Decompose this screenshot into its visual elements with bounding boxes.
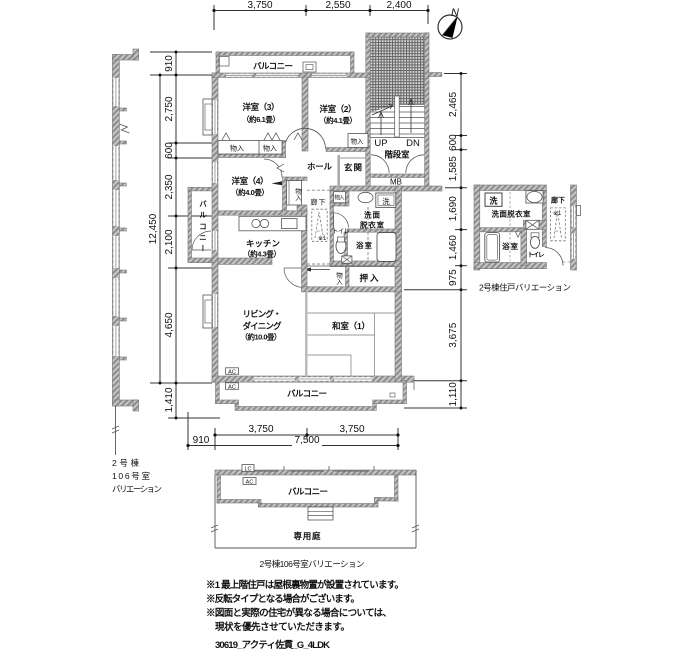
svg-text:910: 910 bbox=[164, 55, 175, 72]
svg-text:UP: UP bbox=[374, 138, 387, 149]
svg-text:物入: 物入 bbox=[230, 144, 244, 153]
svg-text:（約4.3畳）: （約4.3畳） bbox=[243, 249, 281, 259]
svg-text:物入: 物入 bbox=[263, 144, 277, 153]
svg-text:洋室（2）: 洋室（2） bbox=[320, 104, 357, 114]
svg-text:（約4.0畳）: （約4.0畳） bbox=[231, 187, 269, 197]
svg-text:キッチン: キッチン bbox=[246, 239, 280, 249]
svg-text:洗: 洗 bbox=[382, 196, 390, 206]
svg-text:洋室（4）: 洋室（4） bbox=[232, 176, 269, 186]
svg-text:2,400: 2,400 bbox=[386, 0, 411, 11]
svg-text:2,465: 2,465 bbox=[448, 92, 459, 117]
svg-text:3,675: 3,675 bbox=[448, 322, 459, 347]
svg-text:バリエーション: バリエーション bbox=[112, 484, 162, 494]
svg-text:LC: LC bbox=[244, 467, 251, 473]
svg-text:1,690: 1,690 bbox=[448, 196, 459, 221]
svg-text:2,350: 2,350 bbox=[164, 174, 175, 199]
svg-text:物入: 物入 bbox=[351, 137, 365, 146]
svg-text:洋室（3）: 洋室（3） bbox=[243, 102, 280, 112]
svg-text:玄関: 玄関 bbox=[344, 163, 362, 173]
svg-text:洗面: 洗面 bbox=[364, 210, 381, 220]
svg-text:600: 600 bbox=[164, 142, 175, 159]
svg-text:洗: 洗 bbox=[490, 196, 498, 206]
svg-text:（約4.1畳）: （約4.1畳） bbox=[319, 115, 357, 125]
svg-text:1,410: 1,410 bbox=[164, 387, 175, 412]
svg-text:バルコニー: バルコニー bbox=[287, 389, 327, 399]
svg-text:浴室: 浴室 bbox=[502, 241, 519, 251]
svg-text:3,750: 3,750 bbox=[247, 0, 272, 11]
svg-text:（約6.1畳）: （約6.1畳） bbox=[242, 114, 280, 124]
svg-text:1,585: 1,585 bbox=[448, 156, 459, 181]
svg-text:バルコニー: バルコニー bbox=[253, 61, 293, 71]
svg-text:和室（1）: 和室（1） bbox=[332, 321, 370, 331]
svg-text:2号棟: 2号棟 bbox=[112, 458, 139, 468]
svg-text:トイレ: トイレ bbox=[528, 251, 546, 259]
svg-text:12,450: 12,450 bbox=[148, 213, 159, 244]
svg-text:AC: AC bbox=[246, 480, 254, 486]
svg-text:1,110: 1,110 bbox=[448, 382, 459, 407]
svg-text:2,100: 2,100 bbox=[164, 229, 175, 254]
svg-text:2号棟住戸バリエーション: 2号棟住戸バリエーション bbox=[479, 283, 571, 293]
svg-text:2号棟106号室バリエーション: 2号棟106号室バリエーション bbox=[260, 559, 365, 569]
svg-text:4,650: 4,650 bbox=[164, 312, 175, 337]
svg-text:専用庭: 専用庭 bbox=[294, 531, 321, 541]
svg-text:975: 975 bbox=[448, 269, 459, 286]
svg-text:浴室: 浴室 bbox=[356, 240, 373, 250]
svg-text:3,750: 3,750 bbox=[248, 424, 273, 435]
svg-text:AC: AC bbox=[228, 385, 236, 391]
svg-text:階段室: 階段室 bbox=[385, 150, 410, 160]
svg-text:2,750: 2,750 bbox=[164, 96, 175, 121]
svg-text:N: N bbox=[451, 7, 459, 19]
svg-text:押入: 押入 bbox=[360, 273, 379, 283]
svg-text:ホール: ホール bbox=[307, 162, 332, 172]
svg-text:トイレ: トイレ bbox=[332, 228, 350, 235]
svg-text:廊下: 廊下 bbox=[311, 198, 326, 207]
svg-text:MB: MB bbox=[390, 178, 402, 187]
svg-text:※図面と実際の住宅が異なる場合については、: ※図面と実際の住宅が異なる場合については、 bbox=[206, 607, 392, 619]
svg-text:※反転タイプとなる場合がございます。: ※反転タイプとなる場合がございます。 bbox=[206, 593, 360, 605]
svg-text:ダイニング: ダイニング bbox=[243, 321, 282, 331]
svg-text:洗面脱衣室: 洗面脱衣室 bbox=[492, 209, 532, 219]
svg-text:バルコニー: バルコニー bbox=[288, 487, 328, 497]
svg-text:1,460: 1,460 bbox=[448, 235, 459, 260]
svg-text:脱衣室: 脱衣室 bbox=[360, 220, 385, 230]
svg-text:廊下: 廊下 bbox=[551, 196, 565, 205]
svg-text:AC: AC bbox=[228, 370, 236, 376]
svg-text:（約10.0畳）: （約10.0畳） bbox=[241, 332, 282, 342]
svg-text:30619_アクティ佐貫_G_4LDK: 30619_アクティ佐貫_G_4LDK bbox=[215, 639, 330, 650]
svg-text:600: 600 bbox=[448, 134, 459, 151]
svg-text:2,550: 2,550 bbox=[325, 0, 350, 11]
svg-text:7,500: 7,500 bbox=[294, 435, 319, 446]
svg-text:DN: DN bbox=[406, 138, 420, 149]
svg-text:3,750: 3,750 bbox=[339, 424, 364, 435]
svg-text:バルコニー: バルコニー bbox=[198, 200, 207, 253]
svg-text:※1 最上階住戸は屋根裏物置が設置されています。: ※1 最上階住戸は屋根裏物置が設置されています。 bbox=[206, 579, 404, 591]
svg-text:現状を優先させていただきます。: 現状を優先させていただきます。 bbox=[215, 621, 350, 633]
svg-text:物入: 物入 bbox=[335, 194, 345, 202]
svg-text:※1: ※1 bbox=[553, 210, 562, 217]
svg-text:リビング・: リビング・ bbox=[243, 309, 282, 319]
svg-text:910: 910 bbox=[193, 435, 210, 446]
svg-text:106号室: 106号室 bbox=[112, 471, 150, 481]
svg-text:※1: ※1 bbox=[318, 235, 327, 242]
